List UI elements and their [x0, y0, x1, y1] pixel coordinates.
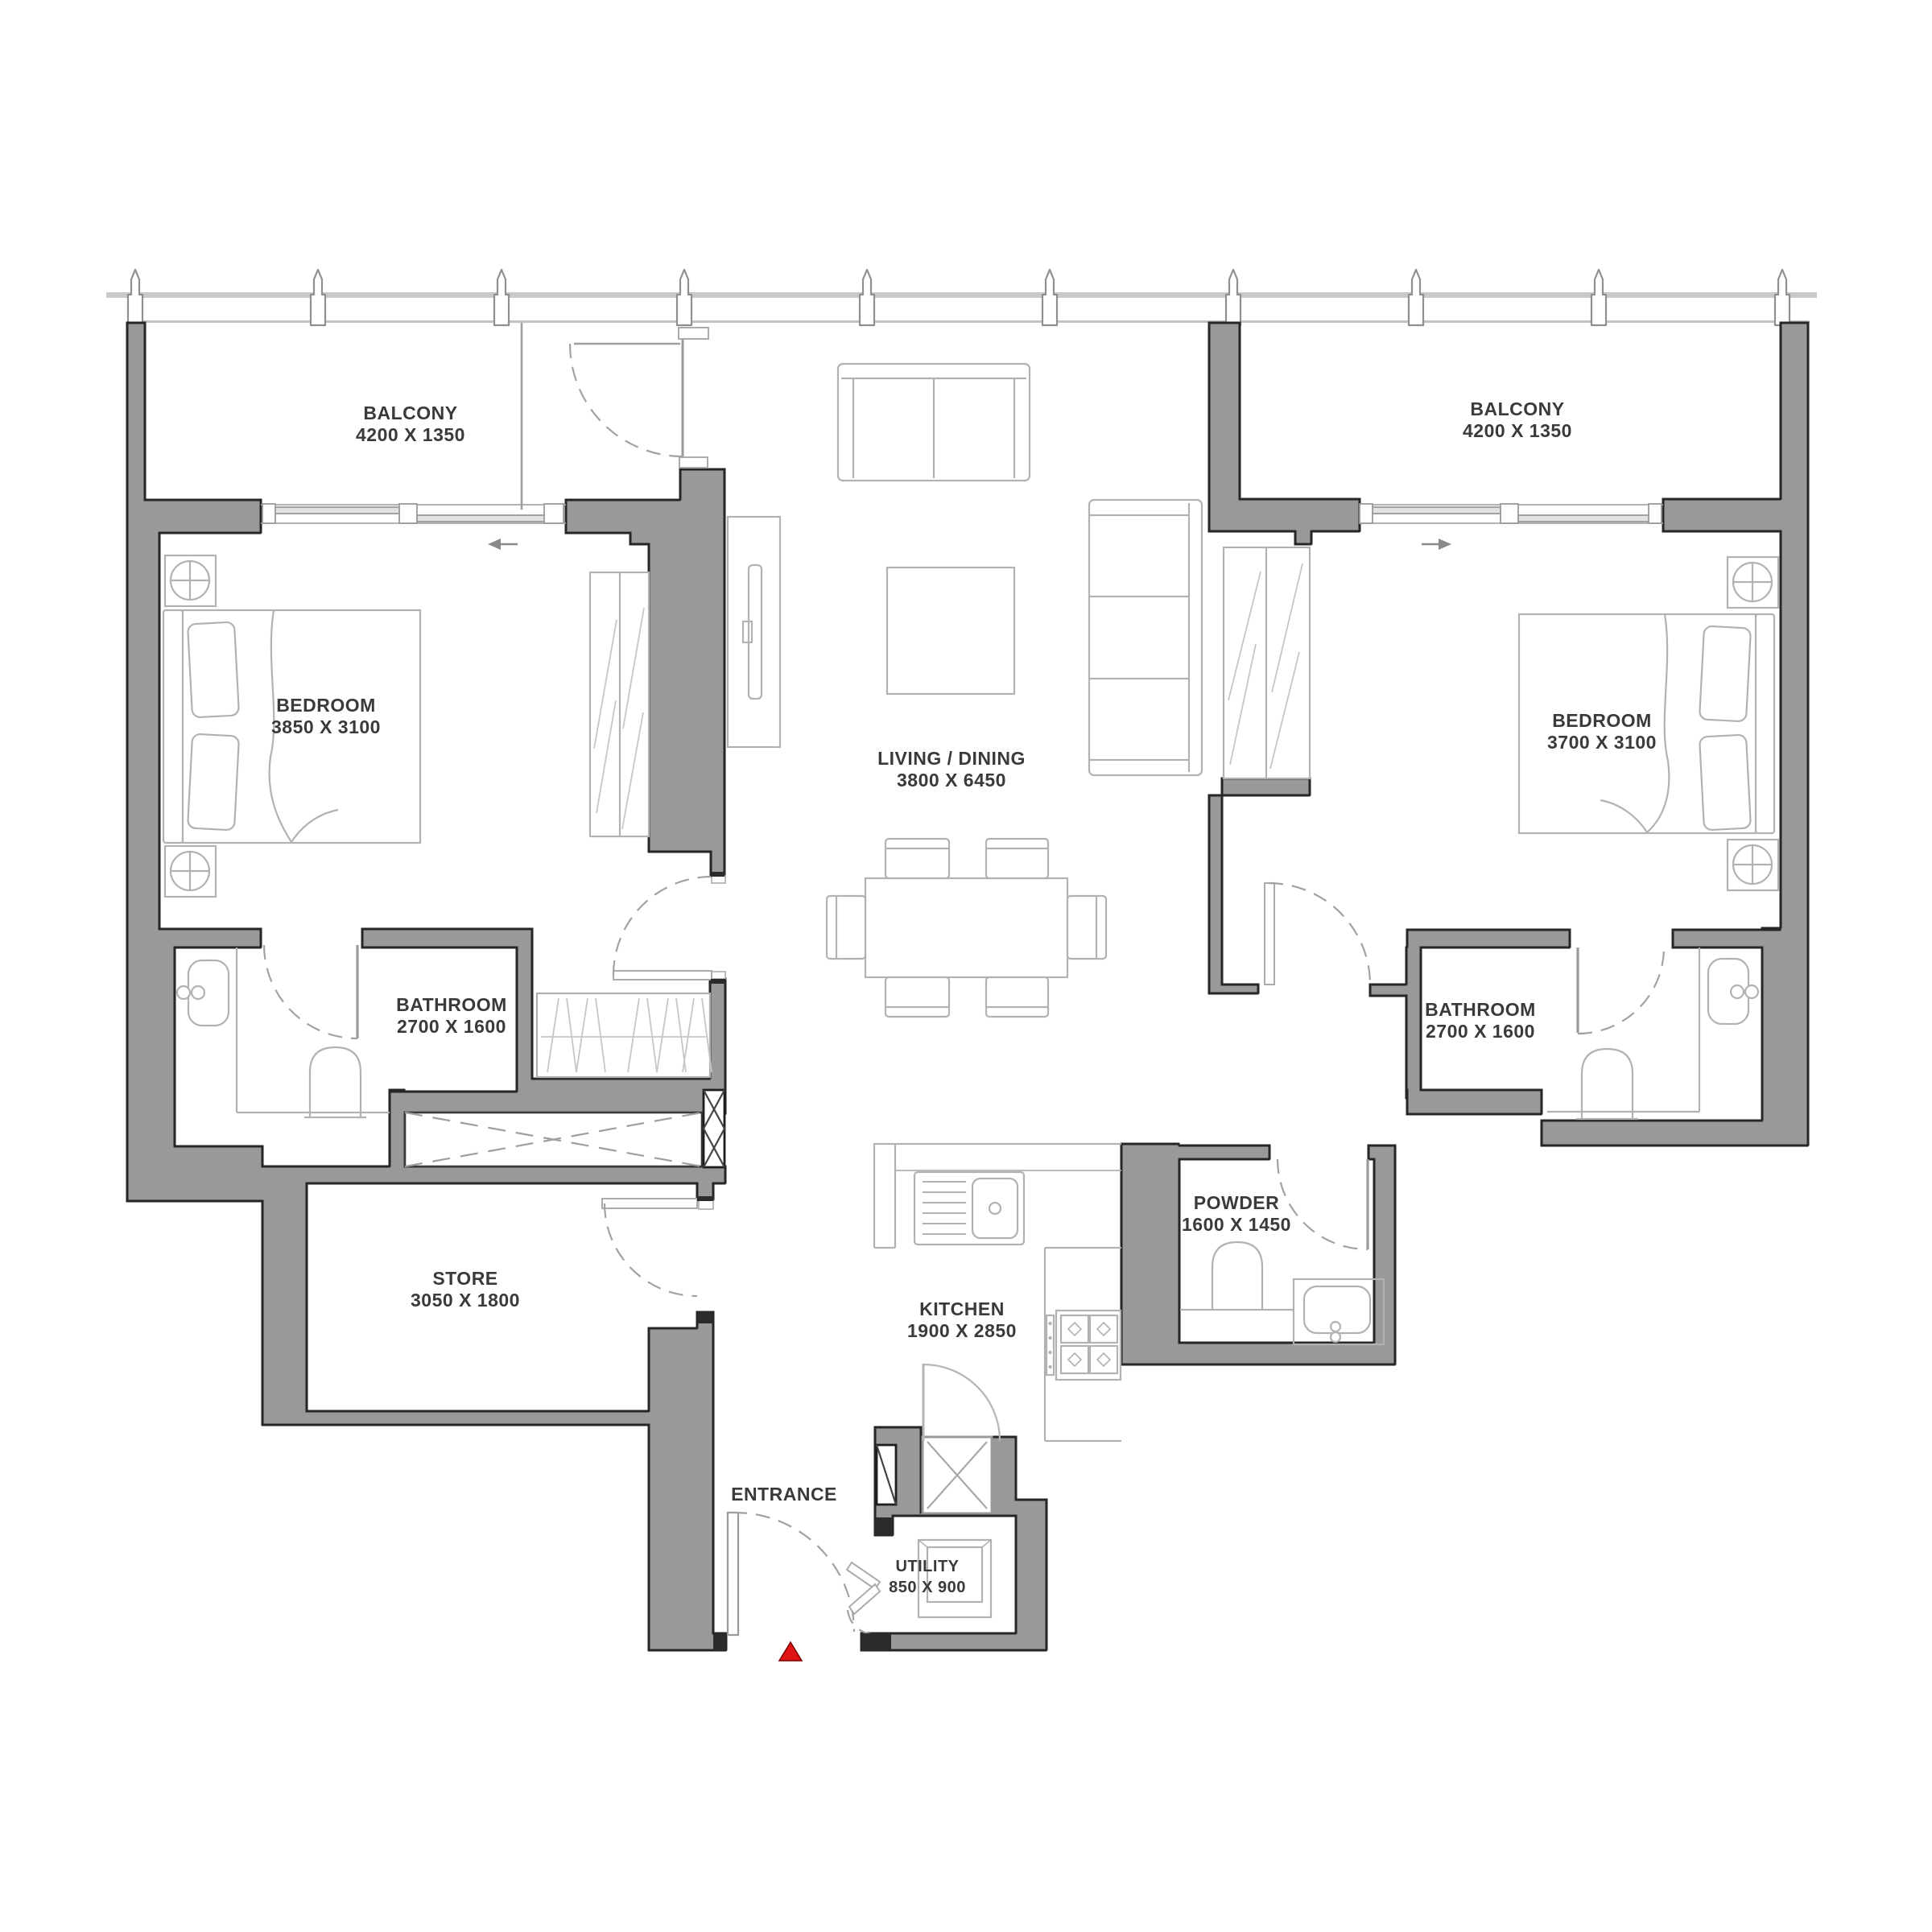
svg-text:3050 X 1800: 3050 X 1800	[411, 1290, 520, 1311]
svg-text:3700 X 3100: 3700 X 3100	[1547, 732, 1657, 753]
svg-text:BATHROOM: BATHROOM	[396, 994, 507, 1015]
svg-text:BEDROOM: BEDROOM	[276, 695, 376, 716]
svg-text:4200 X 1350: 4200 X 1350	[356, 424, 465, 445]
svg-text:850 X 900: 850 X 900	[889, 1579, 966, 1596]
svg-text:BALCONY: BALCONY	[1470, 398, 1564, 419]
svg-text:LIVING / DINING: LIVING / DINING	[877, 748, 1026, 769]
svg-text:2700 X 1600: 2700 X 1600	[397, 1016, 506, 1037]
svg-text:3800 X 6450: 3800 X 6450	[897, 770, 1006, 791]
svg-text:BEDROOM: BEDROOM	[1552, 710, 1652, 731]
svg-text:3850 X 3100: 3850 X 3100	[271, 716, 381, 737]
svg-text:BALCONY: BALCONY	[363, 402, 457, 423]
svg-text:2700 X 1600: 2700 X 1600	[1426, 1021, 1535, 1042]
svg-text:ENTRANCE: ENTRANCE	[731, 1484, 837, 1505]
svg-text:POWDER: POWDER	[1194, 1192, 1280, 1213]
svg-text:STORE: STORE	[432, 1268, 497, 1289]
svg-text:BATHROOM: BATHROOM	[1425, 999, 1536, 1020]
svg-text:1600 X 1450: 1600 X 1450	[1182, 1214, 1291, 1235]
svg-text:4200 X 1350: 4200 X 1350	[1463, 420, 1572, 441]
svg-text:UTILITY: UTILITY	[895, 1558, 959, 1575]
svg-text:1900 X 2850: 1900 X 2850	[907, 1320, 1017, 1341]
svg-text:KITCHEN: KITCHEN	[919, 1298, 1005, 1319]
